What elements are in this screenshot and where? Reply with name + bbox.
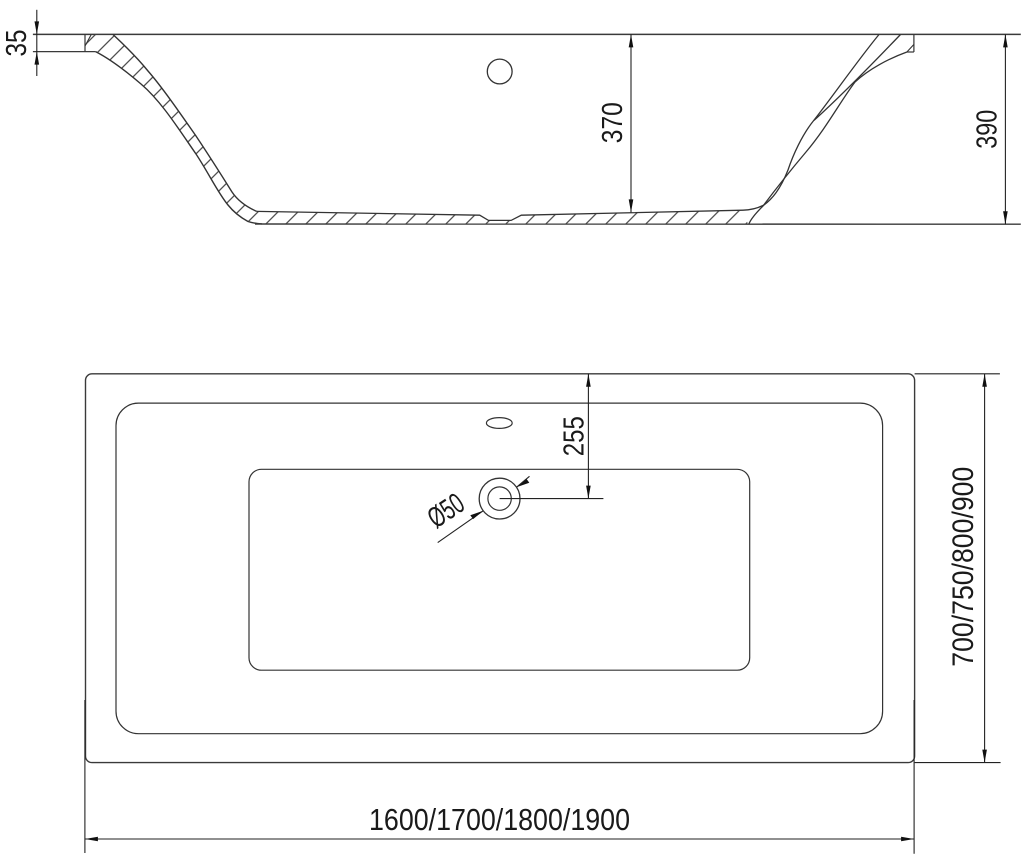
svg-text:700/750/800/900: 700/750/800/900 — [947, 467, 980, 667]
svg-text:370: 370 — [597, 102, 629, 143]
svg-text:390: 390 — [972, 110, 1004, 149]
svg-text:1600/1700/1800/1900: 1600/1700/1800/1900 — [369, 802, 630, 837]
svg-text:Ø50: Ø50 — [422, 488, 471, 535]
svg-text:35: 35 — [1, 30, 33, 57]
svg-text:255: 255 — [559, 416, 591, 456]
